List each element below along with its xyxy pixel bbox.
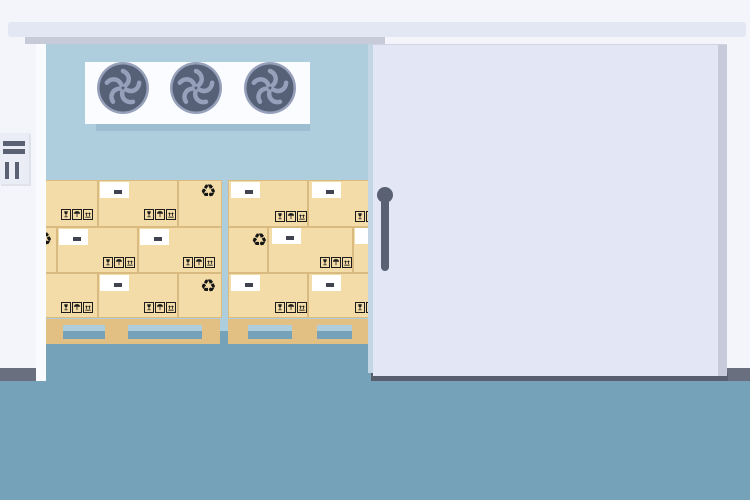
this-way-up-icon <box>297 211 307 222</box>
doorway-jamb <box>36 44 46 381</box>
shipping-label <box>140 229 169 245</box>
shipping-label <box>312 275 341 291</box>
door-handle-bar <box>381 195 389 271</box>
fragile-glass-icon <box>355 302 365 313</box>
fragile-glass-icon <box>275 302 285 313</box>
this-way-up-icon <box>125 257 135 268</box>
cooling-fan-icon <box>244 62 296 118</box>
pallet-bottom-plank <box>45 339 220 344</box>
fragile-glass-icon <box>103 257 113 268</box>
fragile-glass-icon <box>183 257 193 268</box>
shipping-label <box>231 275 260 291</box>
shipping-label <box>59 229 88 245</box>
pallet-foot <box>105 325 128 339</box>
cardboard-box <box>228 180 308 227</box>
left-box-stack: ♻♻♻ <box>45 178 222 345</box>
shipping-label <box>231 182 260 198</box>
label-text-dash <box>114 190 122 194</box>
pallet-bottom-plank <box>228 339 368 344</box>
shipping-label <box>312 182 341 198</box>
fragile-glass-icon <box>61 302 71 313</box>
label-text-dash <box>245 283 253 287</box>
this-way-up-icon <box>205 257 215 268</box>
recycle-icon: ♻ <box>251 232 268 249</box>
fragile-glass-icon <box>355 211 365 222</box>
sliding-door-right-edge <box>718 45 727 376</box>
cardboard-box: ♻ <box>178 273 222 318</box>
door-rail-shadow <box>25 37 385 44</box>
label-text-dash <box>286 236 294 240</box>
keep-dry-umbrella-icon <box>155 209 165 220</box>
handling-icons-group <box>275 211 307 222</box>
handling-icons-group <box>183 257 215 268</box>
control-panel-vertical-bar <box>5 162 9 179</box>
fragile-glass-icon <box>275 211 285 222</box>
pallet-foot <box>292 325 317 339</box>
this-way-up-icon <box>83 209 93 220</box>
cardboard-box <box>228 273 308 318</box>
cooling-fan-icon <box>97 62 149 118</box>
handling-icons-group <box>355 302 368 313</box>
keep-dry-umbrella-icon <box>194 257 204 268</box>
recycle-icon: ♻ <box>200 278 217 295</box>
handling-icons-group <box>355 211 368 222</box>
handling-icons-group <box>144 302 176 313</box>
keep-dry-umbrella-icon <box>331 257 341 268</box>
handling-icons-group <box>320 257 352 268</box>
right-box-stack: ♻ <box>228 178 368 345</box>
recycle-icon: ♻ <box>45 231 53 248</box>
this-way-up-icon <box>166 209 176 220</box>
cardboard-box <box>268 227 353 273</box>
wall-control-panel <box>0 133 30 184</box>
handling-icons-group <box>275 302 307 313</box>
shipping-label <box>100 275 129 291</box>
keep-dry-umbrella-icon <box>286 302 296 313</box>
warehouse-floor <box>0 381 750 500</box>
label-text-dash <box>73 237 81 241</box>
cardboard-box <box>308 180 368 227</box>
cardboard-box <box>353 227 368 273</box>
recycle-icon: ♻ <box>200 183 217 200</box>
fragile-glass-icon <box>144 209 154 220</box>
cardboard-box <box>98 180 178 227</box>
cardboard-box: ♻ <box>45 227 57 273</box>
shipping-label <box>100 182 129 198</box>
cardboard-box <box>45 273 98 318</box>
cardboard-box <box>98 273 178 318</box>
control-panel-horizontal-bar <box>3 141 25 146</box>
this-way-up-icon <box>297 302 307 313</box>
cardboard-box: ♻ <box>178 180 222 227</box>
handling-icons-group <box>61 209 93 220</box>
pallet-foot <box>352 325 368 339</box>
pallet-foot <box>45 325 63 339</box>
cardboard-box: ♻ <box>228 227 268 273</box>
cardboard-box <box>138 227 222 273</box>
sliding-door <box>373 44 727 376</box>
keep-dry-umbrella-icon <box>155 302 165 313</box>
label-text-dash <box>154 237 162 241</box>
fragile-glass-icon <box>144 302 154 313</box>
pallet-foot <box>202 325 220 339</box>
cold-storage-room-illustration: ♻♻♻♻ <box>0 0 750 500</box>
keep-dry-umbrella-icon <box>72 209 82 220</box>
door-rail <box>8 22 746 37</box>
handling-icons-group <box>61 302 93 313</box>
shipping-label <box>272 228 301 244</box>
handling-icons-group <box>103 257 135 268</box>
keep-dry-umbrella-icon <box>114 257 124 268</box>
label-text-dash <box>326 283 334 287</box>
this-way-up-icon <box>166 302 176 313</box>
pallet-foot <box>228 325 248 339</box>
control-panel-horizontal-bar <box>3 149 25 154</box>
cardboard-box <box>45 180 98 227</box>
cooling-fan-icon <box>170 62 222 118</box>
keep-dry-umbrella-icon <box>286 211 296 222</box>
fragile-glass-icon <box>61 209 71 220</box>
cardboard-box <box>57 227 138 273</box>
label-text-dash <box>326 190 334 194</box>
label-text-dash <box>114 283 122 287</box>
this-way-up-icon <box>83 302 93 313</box>
control-panel-vertical-bar <box>15 162 19 179</box>
this-way-up-icon <box>342 257 352 268</box>
shipping-label <box>355 228 368 244</box>
pallet-top-plank <box>45 319 220 325</box>
left-wall-baseboard <box>0 368 36 381</box>
cooling-unit-panel-shadow <box>96 124 310 131</box>
right-wall-baseboard <box>726 368 750 381</box>
keep-dry-umbrella-icon <box>72 302 82 313</box>
cardboard-box <box>308 273 368 318</box>
label-text-dash <box>245 190 253 194</box>
handling-icons-group <box>144 209 176 220</box>
fragile-glass-icon <box>320 257 330 268</box>
